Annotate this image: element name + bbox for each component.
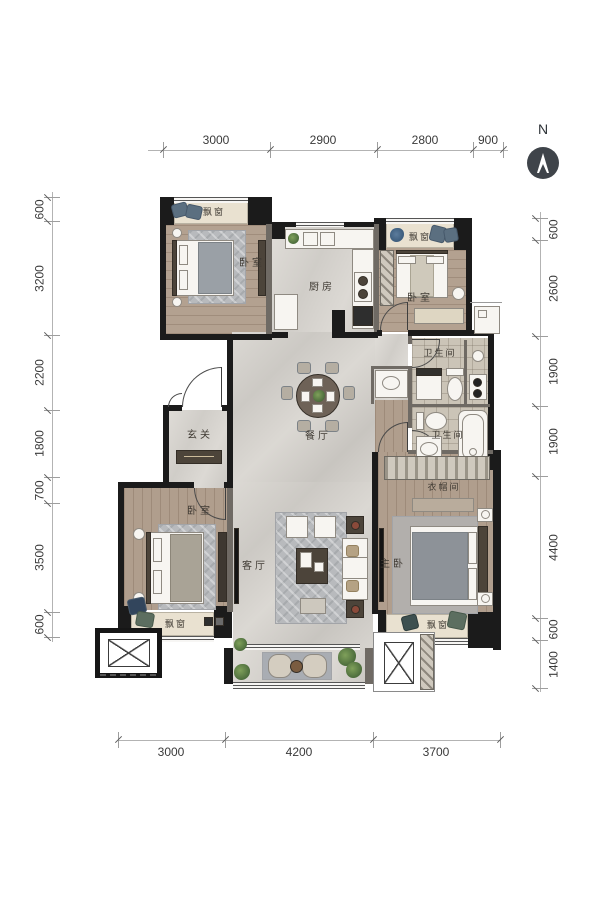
wall	[222, 405, 233, 411]
wall	[160, 334, 272, 340]
north-label: N	[533, 121, 553, 137]
dim-right-1: 600	[548, 208, 561, 252]
north-arrow-notch	[539, 164, 547, 173]
room-label-bay-bl: 飘窗	[150, 618, 202, 630]
wall	[374, 224, 379, 334]
wall	[365, 648, 373, 684]
room-label-bedroom-bl: 卧室	[170, 506, 230, 518]
wall	[412, 404, 490, 407]
console-decor	[184, 456, 214, 457]
headboard	[172, 240, 177, 296]
dim-rail-top	[148, 150, 508, 151]
dim-left-1: 600	[34, 188, 47, 232]
room-label-bedroom-tl: 卧室	[222, 258, 282, 270]
room-label-closet: 衣帽间	[408, 481, 480, 493]
oven	[353, 306, 373, 326]
armchair	[314, 516, 336, 538]
bed-pillow	[179, 270, 188, 290]
dim-tick	[377, 142, 378, 158]
dim-top-4: 900	[466, 134, 510, 147]
wall	[408, 330, 472, 336]
dim-rail-left	[52, 192, 53, 642]
dim-right-5: 4400	[548, 526, 561, 570]
dim-top-3: 2800	[403, 134, 447, 147]
flue	[272, 226, 285, 239]
dining-chair	[325, 362, 339, 374]
table-decor	[300, 552, 312, 568]
place-setting	[326, 391, 335, 402]
room-label-bath-upper: 卫生间	[406, 347, 474, 359]
decor-pillow	[443, 227, 459, 243]
wall	[377, 330, 382, 336]
wall	[493, 450, 501, 650]
basin	[420, 442, 438, 456]
bed-pillow	[179, 245, 188, 265]
dining-chair	[343, 386, 355, 400]
dim-tick	[532, 640, 548, 641]
entry-door-arc-small	[168, 393, 182, 407]
kitchen-sink	[320, 232, 335, 246]
entry-door-arc	[182, 367, 222, 407]
wall	[272, 332, 288, 338]
armchair	[286, 516, 308, 538]
wall	[163, 405, 169, 488]
dim-tick	[373, 732, 374, 748]
wall	[160, 197, 166, 340]
dim-tick	[44, 410, 60, 411]
dim-right-4: 1900	[548, 420, 561, 464]
room-label-kitchen: 厨房	[292, 282, 352, 294]
dim-tick	[44, 335, 60, 336]
kitchen-window	[296, 222, 344, 227]
bed-pillow	[153, 570, 162, 594]
wall	[408, 366, 412, 428]
table-decor	[314, 562, 324, 572]
door-leaf	[412, 339, 440, 340]
lamp	[481, 594, 490, 603]
legend-icon	[215, 617, 224, 626]
dim-right-3: 1900	[548, 350, 561, 394]
dim-tick	[270, 142, 271, 158]
burner	[358, 276, 368, 286]
bed-pillow	[426, 256, 444, 264]
duct	[332, 310, 345, 332]
dining-chair	[297, 362, 311, 374]
fridge	[274, 294, 298, 330]
wall	[224, 648, 233, 684]
door-leaf	[407, 422, 408, 452]
lounge-chair	[268, 654, 292, 678]
dim-bottom-3: 3700	[414, 746, 458, 759]
room-label-bay-tl: 飘窗	[189, 206, 239, 218]
floor-foyer	[166, 410, 227, 488]
place-setting	[312, 378, 323, 387]
closet-island	[412, 498, 474, 512]
dim-tick	[532, 476, 548, 477]
toilet-tank	[416, 412, 424, 430]
floor-plan-page: 3000 2900 2800 900 3000 4200 3700 600 32…	[0, 0, 600, 900]
room-label-bedroom-tr: 卧室	[390, 293, 450, 305]
room-label-bath-lower: 卫生间	[414, 429, 482, 441]
elevator-symbol	[108, 639, 150, 667]
legend-icon	[204, 617, 213, 626]
bed-pillow	[398, 256, 416, 264]
dim-bottom-2: 4200	[277, 746, 321, 759]
nightstand	[172, 297, 182, 307]
wall	[266, 224, 272, 334]
nightstand	[172, 228, 182, 238]
blanket	[412, 532, 468, 600]
room-label-bay-tr: 飘窗	[395, 231, 445, 243]
place-setting	[301, 391, 310, 402]
nightstand	[452, 287, 465, 300]
dim-left-6: 3500	[34, 536, 47, 580]
wall	[371, 366, 408, 369]
bathtub-drain	[469, 448, 477, 456]
nightstand	[133, 528, 145, 540]
dim-left-2: 3200	[34, 257, 47, 301]
bed-pillow	[468, 532, 477, 564]
wall	[118, 482, 124, 612]
headboard	[396, 250, 448, 254]
closet-wardrobe	[384, 456, 490, 480]
dim-left-5: 700	[34, 469, 47, 513]
dim-left-7: 600	[34, 603, 47, 647]
dim-tick	[532, 240, 548, 241]
place-setting	[312, 404, 323, 413]
elevator-symbol	[384, 642, 414, 684]
dim-top-2: 2900	[301, 134, 345, 147]
hall-basin	[382, 376, 400, 390]
wall	[466, 218, 472, 336]
dim-tick	[225, 732, 226, 748]
lounge-chair	[302, 654, 327, 678]
toilet	[425, 412, 447, 430]
dim-left-3: 2200	[34, 351, 47, 395]
headboard	[146, 532, 151, 604]
wall	[227, 340, 233, 488]
sofa-pillow	[346, 545, 359, 557]
bench	[300, 598, 326, 614]
door-leaf	[407, 302, 408, 330]
dashed-threshold	[100, 674, 156, 676]
dim-top-1: 3000	[194, 134, 238, 147]
heater-dial	[473, 378, 482, 387]
lamp	[481, 510, 490, 519]
wall	[118, 482, 194, 488]
balcony-railing	[233, 682, 365, 689]
outline	[470, 302, 502, 303]
dim-tick	[500, 732, 501, 748]
dining-chair	[281, 386, 293, 400]
bed-pillow	[153, 538, 162, 562]
window-glazing	[386, 218, 454, 224]
bed-pillow	[468, 568, 477, 600]
dim-bottom-1: 3000	[149, 746, 193, 759]
dim-tick	[532, 688, 548, 689]
side-table-decor	[351, 521, 360, 530]
burner	[358, 289, 368, 299]
dim-right-2: 2600	[548, 267, 561, 311]
dim-tick	[163, 142, 164, 158]
dim-tick	[118, 732, 119, 748]
bench	[414, 308, 464, 324]
room-label-living: 客厅	[225, 561, 285, 573]
hatched-wall	[420, 634, 434, 690]
room-label-foyer: 玄关	[170, 430, 230, 442]
dim-tick	[532, 336, 548, 337]
balcony-table	[290, 660, 303, 673]
entry-door-leaf	[221, 367, 222, 407]
side-table-decor	[351, 605, 360, 614]
toilet-tank	[446, 368, 464, 376]
toilet	[447, 377, 463, 401]
dim-right-7: 1400	[548, 643, 561, 687]
room-label-bay-master: 飘窗	[412, 619, 464, 631]
wall	[332, 332, 378, 338]
wall	[371, 366, 374, 404]
dim-rail-right	[540, 212, 541, 692]
wall	[248, 197, 272, 225]
ac-unit	[478, 310, 487, 318]
dim-tick	[532, 406, 548, 407]
room-label-master: 主卧	[366, 559, 420, 571]
sofa-pillow	[346, 580, 359, 592]
console-table	[176, 450, 222, 464]
kitchen-sink	[303, 232, 318, 246]
heater-dial	[473, 389, 482, 398]
room-label-dining: 餐厅	[288, 431, 348, 443]
blanket	[170, 534, 202, 602]
dim-rail-bottom	[118, 740, 501, 741]
washing-machine-top	[416, 368, 442, 376]
wall	[372, 452, 378, 614]
dim-left-4: 1800	[34, 422, 47, 466]
